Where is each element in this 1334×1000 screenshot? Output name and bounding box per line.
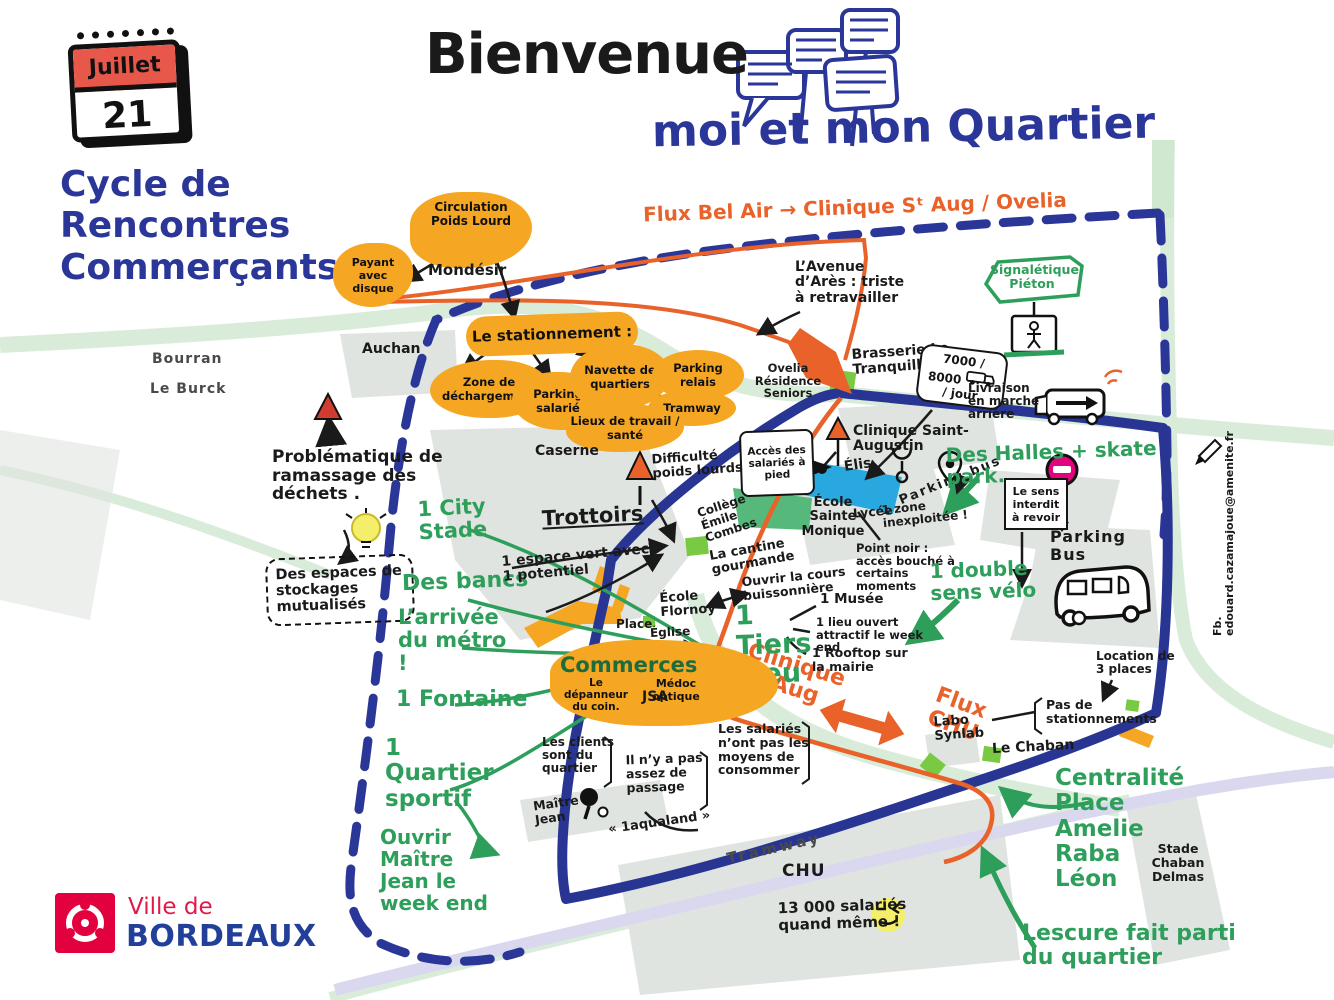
calendar-day: 21 [75, 87, 179, 142]
calendar-body: Juillet 21 [68, 39, 185, 143]
logo-top-label: Ville de [128, 895, 213, 920]
ouvrir-maitre-jean-idea: Ouvrir Maître Jean le week end [380, 826, 495, 914]
chu-label: CHU [782, 862, 826, 881]
fontaine-idea: 1 Fontaine [396, 688, 527, 712]
probleme-dechets-note: Problématique de ramassage des déchets . [272, 448, 452, 504]
passage-note: Il n’y a pas assez de passage [625, 751, 708, 795]
brace-stationnements [1035, 698, 1042, 734]
auchan-label: Auchan [362, 342, 420, 357]
signaletique-idea: Signalétique Piéton [990, 263, 1074, 291]
page-title: Bienvenue [425, 24, 748, 86]
credit-text: Fb. edouard.cazamajoue@amenite.fr [1212, 436, 1236, 636]
labo-label: Labo Synlab [933, 712, 990, 744]
double-sens-idea: 1 double sens vélo [929, 556, 1055, 604]
eglise-label: Église [650, 625, 691, 640]
quartier-sportif-idea: 1 Quartier sportif [385, 736, 515, 812]
caserne-label: Caserne [535, 444, 599, 459]
location-note: Location de 3 places [1096, 650, 1176, 676]
series-title: Cycle de Rencontres Commerçants [60, 164, 360, 288]
rooftop-note: 1 Rooftop sur la mairie [812, 646, 917, 674]
salaries-chu-note: 13 000 salariés quand même ! [777, 896, 908, 934]
calendar-month: Juillet [73, 44, 177, 92]
ovelia-label: Ovelia Résidence Seniors [748, 362, 828, 400]
depanneur-label: Le dépanneur du coin. [560, 677, 632, 713]
livraison-note: Livraison en marche arrière [968, 382, 1040, 422]
ecole-flornoy-label: École Flornoy [659, 588, 721, 621]
avenue-ares-note: L’Avenue d’Arès : triste à retravailler [795, 260, 915, 306]
blob-commerces: Commerces Le dépanneur du coin. Médoc op… [550, 640, 778, 726]
calendar-icon: Juillet 21 [68, 39, 185, 143]
mondesir-label: Mondésir [428, 262, 506, 279]
camper-van-icon [1056, 567, 1149, 625]
parking-bus-big-label: Parking Bus [1050, 528, 1130, 563]
clients-note: Les clients sont du quartier [542, 736, 620, 776]
stade-label: Stade Chaban Delmas [1142, 842, 1214, 883]
lightbulb-icon [346, 508, 386, 547]
place-label: Place [616, 618, 652, 631]
stockages-note: Des espaces de stockages mutualisés [265, 553, 415, 626]
block-left-edge [0, 430, 120, 620]
commerces-title: Commerces [560, 653, 697, 677]
musee-note: 1 Musée [820, 592, 884, 607]
bordeaux-logo-icon [55, 893, 115, 953]
logo-bottom-label: BORDEAUX [126, 920, 317, 953]
page-subtitle: moi et mon Quartier [652, 100, 1156, 157]
bourran-label: Bourran [152, 352, 222, 367]
city-stade-idea: 1 City Stade [417, 494, 509, 545]
salaries-note: Les salariés n’ont pas les moyens de con… [718, 722, 828, 777]
road-top-right-band [1152, 140, 1174, 218]
le-burck-label: Le Burck [150, 382, 226, 397]
sens-interdit-box: Le sens interdit à revoir [1004, 478, 1068, 530]
metro-idea: L’arrivée du métro ! [398, 606, 508, 675]
jsa-label: JSA [642, 690, 668, 705]
lescure-idea: Lescure fait parti du quartier [1022, 922, 1272, 970]
pas-stationnements-note: Pas de stationnements [1046, 698, 1176, 726]
warning-triangle-red-icon [315, 394, 341, 419]
graphic-recording-map: Juillet 21 Bienvenue moi et mon Quartier… [0, 0, 1334, 1000]
